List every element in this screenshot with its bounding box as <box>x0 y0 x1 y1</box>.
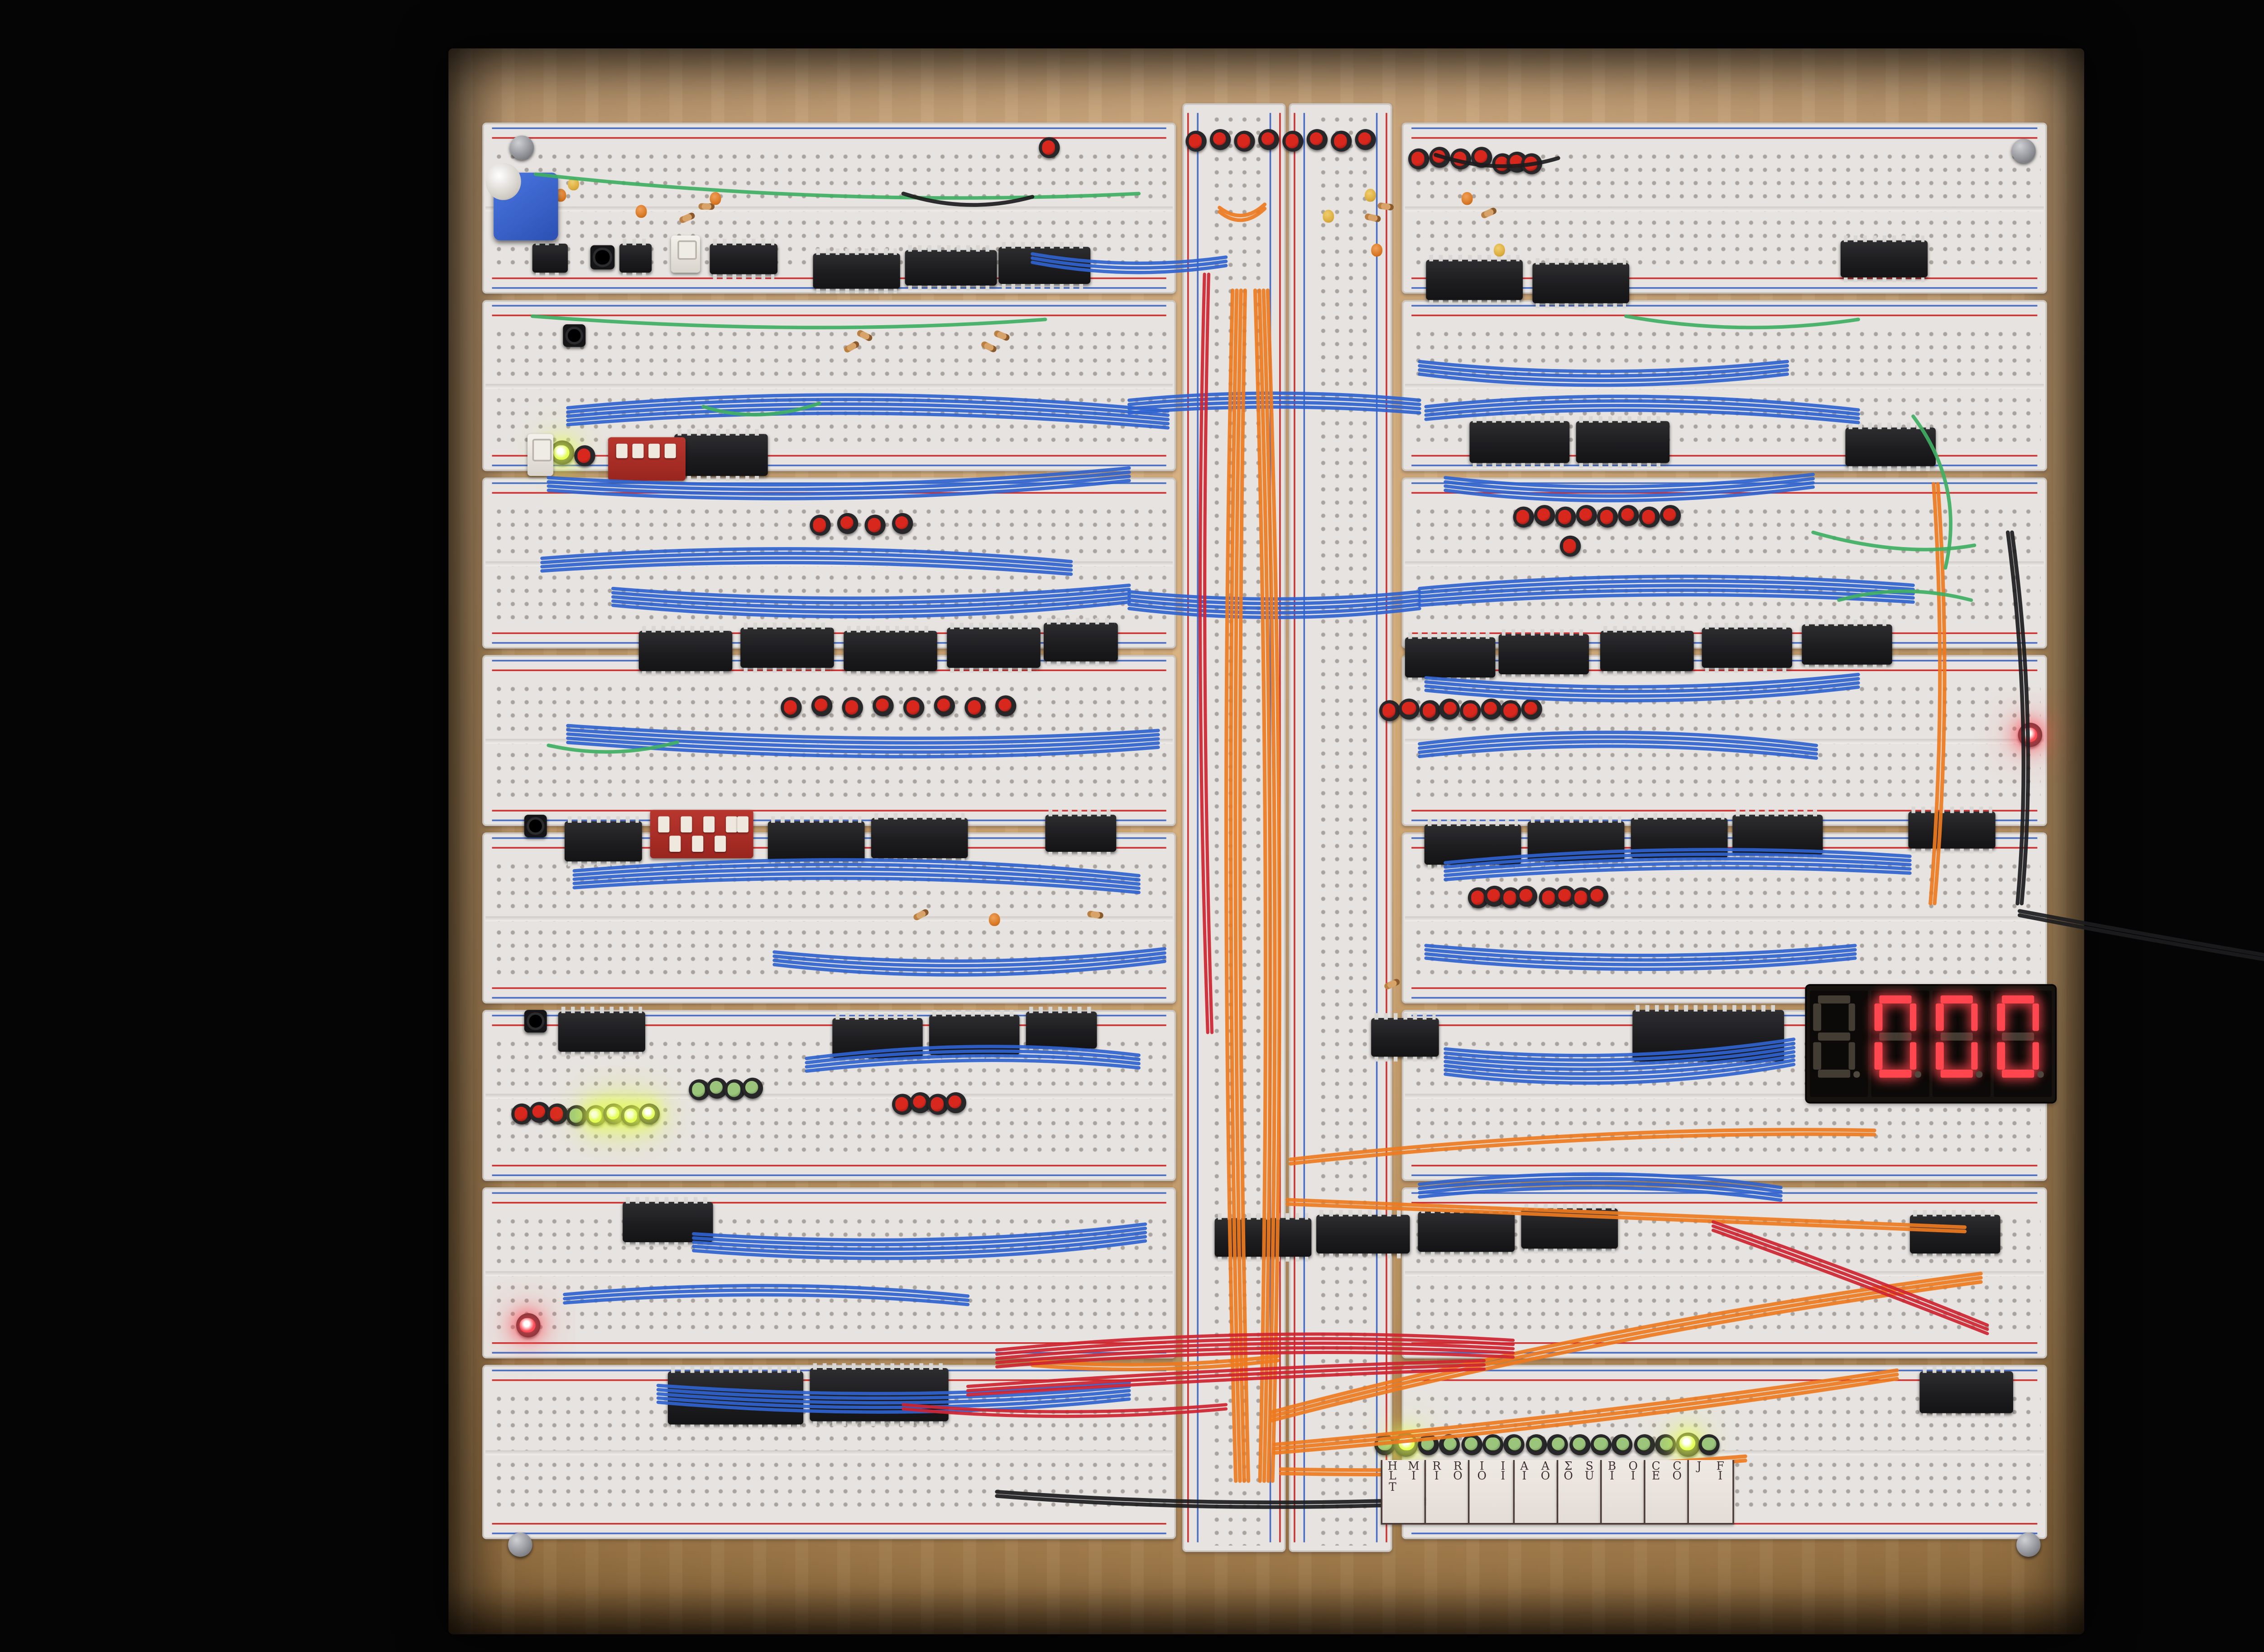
power-rail <box>1411 482 2037 485</box>
led-lens <box>1579 508 1592 521</box>
ic-pins <box>743 623 830 628</box>
led-lens <box>710 1081 723 1094</box>
ic-pins <box>1502 673 1586 679</box>
ic-pins <box>1849 423 1933 428</box>
breadboard-groove <box>485 1450 1173 1455</box>
signal-label: C O <box>1673 1462 1682 1523</box>
ic-chip <box>1846 427 1936 466</box>
led-lens <box>1600 510 1613 524</box>
ic-chip <box>710 244 778 274</box>
led-lens <box>1519 888 1533 902</box>
ic-chip <box>619 244 652 273</box>
breadboard-groove <box>485 561 1173 566</box>
segment-d <box>1879 1070 1911 1077</box>
led-lens <box>1503 891 1517 905</box>
ic-pins <box>1428 820 1518 825</box>
signal-label: C E <box>1652 1462 1660 1523</box>
breadboard-groove <box>485 1093 1173 1098</box>
led-lens <box>937 698 950 712</box>
ic-pins <box>1473 462 1567 468</box>
display-digit <box>1871 990 1929 1097</box>
ic-pins <box>623 239 648 244</box>
led-lens <box>840 516 854 529</box>
breadboard-groove <box>1405 916 2044 921</box>
led-lens <box>1453 152 1467 166</box>
slide-knob <box>532 439 551 461</box>
ic-pins <box>1218 1256 1309 1261</box>
segment-e <box>1997 1042 2004 1069</box>
led-lens <box>814 698 828 712</box>
dip-toggle <box>648 444 659 457</box>
ic-chip <box>1469 421 1569 463</box>
photo-stage: ABCDEABCDEABCDEABCDEFGHIJFGHIJFGHIJFGHIJ… <box>0 0 2264 1652</box>
power-rail <box>1411 1174 2037 1176</box>
signal-label: R O <box>1453 1462 1462 1523</box>
ic-pins <box>1002 283 1087 288</box>
pushpin <box>2011 139 2035 163</box>
led-lens <box>745 1081 758 1094</box>
power-rail <box>1187 113 1190 1542</box>
ic-pins <box>1421 1207 1512 1212</box>
ic-pins <box>1319 1253 1406 1258</box>
segment-a <box>1879 995 1911 1003</box>
ic-pins <box>1636 1061 1781 1066</box>
segment-a <box>1941 995 1973 1003</box>
ic-pins <box>568 861 639 866</box>
pushpin <box>2016 1532 2040 1556</box>
led-lens <box>868 519 881 532</box>
ic-pins <box>1912 807 1992 812</box>
ic-chip <box>810 1368 948 1421</box>
power-rail <box>1411 1342 2037 1344</box>
button-cap <box>568 329 580 342</box>
power-rail <box>1279 113 1281 1542</box>
ic-pins <box>847 626 934 631</box>
dip-toggle <box>726 816 736 833</box>
power-rail <box>492 315 1166 317</box>
ic-pins <box>1603 626 1690 631</box>
signal-label: S U <box>1585 1462 1594 1523</box>
capacitor-orange <box>989 913 1000 926</box>
ic-pins <box>950 623 1037 628</box>
pushpin <box>510 135 534 159</box>
ic-chip <box>905 250 997 285</box>
led-lens <box>1471 891 1484 905</box>
power-rail <box>492 1202 1166 1204</box>
led-lens <box>1382 704 1396 718</box>
ic-chip <box>947 628 1041 668</box>
ic-pins <box>1913 1210 1997 1215</box>
led-lens <box>577 449 591 463</box>
ic-chip <box>623 1202 713 1242</box>
segment-f <box>1997 1003 2004 1030</box>
led-lens <box>1237 134 1251 148</box>
signal-label: B I <box>1608 1462 1616 1523</box>
ic-pins <box>1923 1366 2010 1372</box>
ic-pins <box>536 272 565 277</box>
breadboard-groove <box>1405 738 2044 743</box>
led-lens <box>895 516 909 529</box>
ic-pins <box>1849 466 1933 471</box>
breadboard-groove <box>485 916 1173 921</box>
segment-c <box>1909 1042 1916 1069</box>
segment-dot <box>2037 1071 2043 1077</box>
ic-pins <box>1705 623 1789 628</box>
power-rail <box>492 1164 1166 1167</box>
ic-pins <box>771 861 862 866</box>
ic-chip <box>1426 260 1523 300</box>
ic-pins <box>1634 813 1725 819</box>
segment-b <box>1848 1003 1855 1030</box>
signal-label: I I <box>1501 1462 1505 1523</box>
button-cap <box>529 1015 542 1028</box>
dip-toggle <box>737 816 748 833</box>
breadboard-groove <box>485 1270 1173 1275</box>
signal-label-card: A IA O <box>1512 1460 1556 1525</box>
led-lens <box>2021 727 2037 743</box>
capacitor-yellow <box>1494 244 1505 257</box>
power-rail <box>1411 1351 2037 1354</box>
ic-chip <box>1600 631 1694 671</box>
ic-pins <box>1923 1412 2010 1418</box>
signal-label: O I <box>1629 1462 1638 1523</box>
power-rail <box>492 137 1166 139</box>
segment-g <box>1818 1032 1850 1040</box>
ic-pins <box>1319 1210 1406 1215</box>
ic-chip <box>1802 624 1892 665</box>
ic-chip <box>532 244 568 273</box>
ic-pins <box>561 1051 642 1057</box>
signal-label: F I <box>1717 1462 1724 1523</box>
segment-f <box>1936 1003 1943 1030</box>
ic-pins <box>1421 1251 1512 1257</box>
led-lens <box>1443 1437 1457 1450</box>
led-lens <box>968 701 981 714</box>
led-lens <box>692 1083 705 1097</box>
ic-pins <box>1531 816 1621 822</box>
led-lens <box>1637 1437 1651 1450</box>
segment-dot <box>1915 1071 1920 1077</box>
ic-chip <box>1532 263 1629 303</box>
segment-d <box>1818 1070 1850 1077</box>
power-rail <box>1411 1202 2037 1204</box>
dip-toggle <box>715 836 725 852</box>
ic-pins <box>1579 416 1666 422</box>
dip-switch <box>608 437 686 480</box>
capacitor-yellow <box>1365 189 1376 202</box>
signal-label: R I <box>1432 1462 1441 1523</box>
segment-dot <box>1853 1071 1859 1077</box>
ic-pins <box>1002 242 1087 247</box>
ic-pins <box>568 816 639 822</box>
ic-chip <box>1632 1010 1784 1061</box>
segment-e <box>1875 1042 1882 1069</box>
segment-f <box>1875 1003 1882 1030</box>
segment-d <box>2002 1070 2034 1077</box>
led-lens <box>1537 508 1550 521</box>
ic-pins <box>677 475 764 480</box>
signal-label-card: B IO I <box>1600 1460 1644 1525</box>
ic-pins <box>561 1007 642 1012</box>
ic-pins <box>1844 235 1924 241</box>
ic-pins <box>1502 629 1586 634</box>
breadboard-strip <box>1402 655 2047 826</box>
segment-b <box>1971 1003 1978 1030</box>
slide-switch <box>528 434 553 476</box>
ic-chip <box>668 1371 803 1425</box>
led-lens <box>1642 510 1655 524</box>
signal-label: M I <box>1408 1462 1420 1523</box>
segment-g <box>1941 1032 1973 1040</box>
led-lens <box>1464 1437 1478 1450</box>
led-lens <box>907 701 920 714</box>
ic-pins <box>713 239 774 244</box>
ic-chip <box>1841 240 1928 278</box>
trimpot-shaft <box>486 163 521 200</box>
segment-c <box>1971 1042 1978 1069</box>
led-lens <box>727 1083 741 1097</box>
ic-pins <box>1047 618 1115 623</box>
ic-pins <box>1531 861 1621 866</box>
ic-chip <box>929 1015 1020 1055</box>
ic-pins <box>1634 857 1725 863</box>
power-rail <box>492 996 1166 999</box>
segment-g <box>2002 1032 2034 1040</box>
led-lens <box>1484 701 1497 715</box>
ic-chip <box>1026 1012 1097 1049</box>
segment-c <box>1848 1042 1855 1069</box>
breadboard-strip <box>482 655 1176 826</box>
signal-label: H L T <box>1388 1462 1398 1523</box>
ic-chip <box>1044 623 1118 662</box>
ic-chip <box>1576 421 1670 463</box>
ic-pins <box>908 285 994 290</box>
ic-pins <box>816 288 897 293</box>
dip-switch <box>650 810 753 858</box>
ic-pins <box>677 429 764 435</box>
segment-a <box>2002 995 2034 1003</box>
ic-pins <box>1536 303 1626 308</box>
ic-pins <box>771 816 862 822</box>
ic-pins <box>713 274 774 279</box>
power-rail <box>492 127 1166 130</box>
breadboard-groove <box>485 206 1173 211</box>
led-lens <box>1189 134 1202 148</box>
ic-pins <box>671 1366 800 1372</box>
ic-pins <box>1525 1204 1615 1209</box>
led-lens <box>913 1095 926 1109</box>
led-lens <box>1504 704 1518 718</box>
segment-d <box>1941 1070 1973 1077</box>
led-lens <box>1474 149 1488 163</box>
signal-label-card: H L TM I <box>1381 1460 1425 1525</box>
breadboard-groove <box>485 383 1173 388</box>
ic-chip <box>1908 812 1995 849</box>
power-rail <box>492 1192 1166 1195</box>
ic-pins <box>1636 1005 1781 1010</box>
ic-pins <box>1047 661 1115 666</box>
led-lens <box>1309 132 1323 145</box>
segment-f <box>1813 1003 1820 1030</box>
power-rail <box>492 305 1166 307</box>
breadboard-strip <box>482 1187 1176 1359</box>
power-rail <box>492 482 1166 485</box>
capacitor-orange <box>636 205 647 218</box>
led-lens <box>1659 1437 1673 1450</box>
ic-chip <box>740 628 834 668</box>
led-lens <box>569 1109 583 1123</box>
power-rail <box>1411 137 2037 139</box>
ic-pins <box>1525 1248 1615 1253</box>
dip-toggle <box>665 444 675 457</box>
seven-segment-display <box>1807 986 2055 1102</box>
ic-pins <box>671 1424 800 1429</box>
power-rail <box>1304 113 1306 1542</box>
led-lens <box>1542 891 1555 905</box>
led-lens <box>1524 157 1538 171</box>
ic-pins <box>626 1197 710 1202</box>
ic-pins <box>1844 277 1924 282</box>
power-rail <box>492 1532 1166 1534</box>
ic-pins <box>1473 416 1567 422</box>
ic-pins <box>1049 810 1113 815</box>
button-cap <box>596 250 609 264</box>
ic-chip <box>871 818 968 858</box>
ic-pins <box>1408 677 1492 682</box>
signal-label-card: C EC O <box>1644 1460 1688 1525</box>
ic-chip <box>813 253 900 288</box>
segment-b <box>1909 1003 1916 1030</box>
power-rail <box>1411 127 2037 130</box>
led-lens <box>1516 510 1530 524</box>
ic-chip <box>1919 1371 2013 1413</box>
signal-label-card: R IR O <box>1425 1460 1468 1525</box>
ic-pins <box>1579 462 1666 468</box>
ic-chip <box>674 434 768 476</box>
led-lens <box>1590 888 1604 902</box>
led-lens <box>1616 1437 1630 1450</box>
breadboard-groove <box>1405 1270 2044 1275</box>
led-lens <box>642 1106 655 1120</box>
dip-toggle <box>658 816 669 833</box>
ic-chip <box>1425 824 1521 864</box>
breadboard-groove <box>1405 561 2044 566</box>
ic-pins <box>626 1241 710 1247</box>
ic-pins <box>874 813 965 819</box>
led-lens <box>876 698 889 712</box>
power-rail <box>492 1174 1166 1176</box>
power-rail <box>1411 1532 2037 1534</box>
ic-chip <box>1521 1208 1618 1249</box>
ic-pins <box>1705 667 1789 672</box>
led-lens <box>1261 132 1275 145</box>
ic-pins <box>1429 299 1520 305</box>
led-lens <box>1411 152 1425 166</box>
ic-pins <box>835 1057 919 1063</box>
display-digit <box>1810 990 1868 1097</box>
led-lens <box>1463 704 1477 718</box>
led-lens <box>1421 1437 1435 1450</box>
ic-chip <box>1215 1218 1312 1257</box>
display-digit <box>1994 990 2052 1097</box>
button-cap <box>529 820 542 832</box>
ic-pins <box>642 670 729 676</box>
led-lens <box>554 445 569 460</box>
led-lens <box>1551 1437 1564 1450</box>
dip-toggle <box>692 836 702 852</box>
power-rail <box>1269 113 1271 1542</box>
led-lens <box>1574 891 1588 905</box>
led-lens <box>624 1109 638 1123</box>
led-lens <box>1378 1437 1392 1450</box>
led-lens <box>1486 1437 1500 1450</box>
led-lens <box>514 1107 528 1121</box>
power-rail <box>1411 315 2037 317</box>
ic-chip <box>832 1018 923 1058</box>
led-lens <box>948 1095 962 1109</box>
led-red <box>1521 698 1541 719</box>
ic-pins <box>950 667 1037 672</box>
ic-pins <box>847 670 934 676</box>
led-lens <box>1432 149 1446 163</box>
segment-dot <box>1976 1071 1981 1077</box>
ic-pins <box>1374 1013 1435 1018</box>
ic-pins <box>813 1421 945 1426</box>
ic-pins <box>1805 619 1889 625</box>
ic-pins <box>835 1013 919 1018</box>
power-rail <box>492 1522 1166 1525</box>
ic-chip <box>1499 634 1589 674</box>
led-lens <box>1563 539 1576 553</box>
capacitor-yellow <box>1323 210 1334 223</box>
power-rail <box>492 492 1166 495</box>
led-lens <box>1525 701 1538 715</box>
led-lens <box>532 1105 546 1118</box>
led-lens <box>1402 701 1416 715</box>
led-lens <box>589 1109 602 1123</box>
ic-pins <box>1536 258 1626 264</box>
slide-knob <box>677 240 698 259</box>
ic-pins <box>908 245 994 251</box>
led-lens <box>1423 704 1436 718</box>
power-rail <box>1411 1192 2037 1195</box>
led-lens <box>1558 510 1572 524</box>
power-rail <box>492 987 1166 989</box>
led-lens <box>1508 1437 1521 1450</box>
segment-a <box>1818 995 1850 1003</box>
led-lens <box>1285 134 1299 148</box>
dip-toggle <box>669 836 680 852</box>
dip-toggle <box>703 816 714 833</box>
dip-toggle <box>616 444 627 457</box>
led-lens <box>1487 888 1501 902</box>
ic-pins <box>1029 1007 1094 1012</box>
segment-c <box>2032 1042 2039 1069</box>
signal-label: A I <box>1520 1462 1528 1523</box>
signal-label-card: I OI I <box>1468 1460 1512 1525</box>
led-lens <box>1703 1437 1716 1450</box>
power-rail <box>1385 113 1387 1542</box>
ic-chip <box>1631 818 1728 858</box>
ic-pins <box>932 1054 1016 1060</box>
led-lens <box>1558 888 1572 902</box>
capacitor-orange <box>1462 192 1473 205</box>
breadboard-holes <box>1313 110 1368 1546</box>
led-lens <box>845 701 859 714</box>
ic-pins <box>1429 255 1520 260</box>
ic-pins <box>932 1010 1016 1015</box>
ic-pins <box>1913 1253 1997 1258</box>
